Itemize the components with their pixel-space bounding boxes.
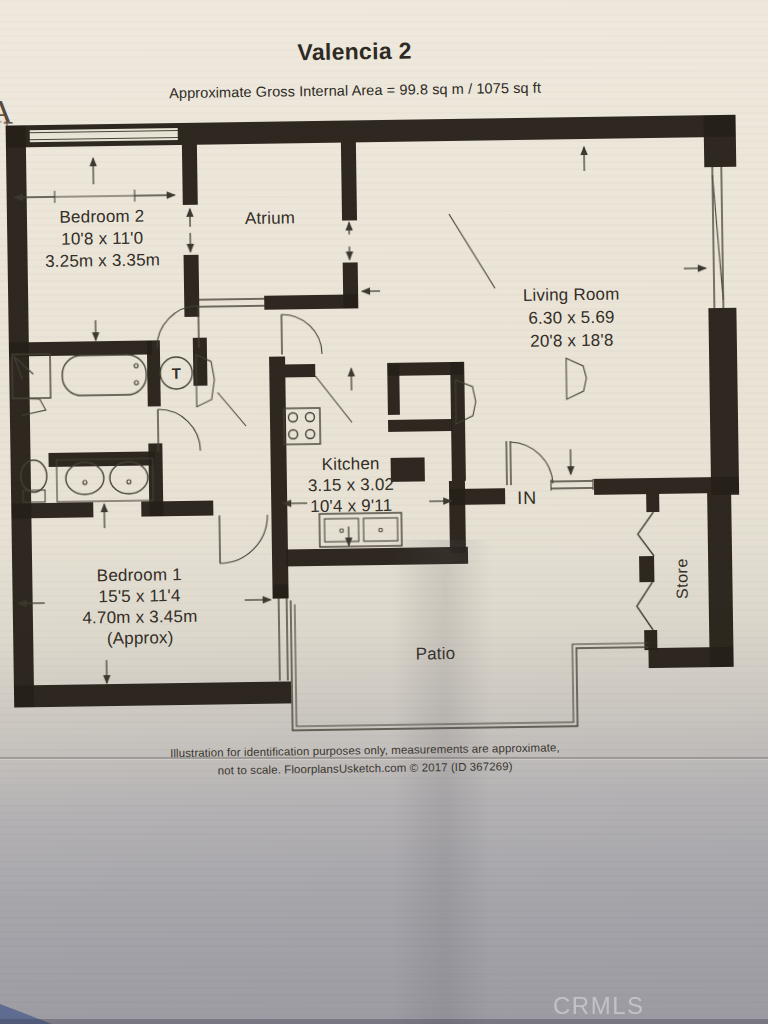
room-label-bedroom1: Bedroom 1 15'5 x 11'4 4.70m x 3.45m (App…: [82, 564, 198, 650]
atrium-name: Atrium: [245, 207, 296, 230]
paper-crease-horizontal: [0, 757, 768, 759]
bedroom1-patio-door: [279, 598, 288, 680]
bathtub-icon: [62, 355, 147, 396]
living-room-dims-metric: 6.30 x 5.69: [523, 305, 620, 329]
room-label-store: Store: [673, 558, 692, 599]
bedroom1-dims-imperial: 15'5 x 11'4: [82, 585, 197, 608]
stove-icon: [284, 408, 321, 445]
tank-label: T: [172, 365, 181, 382]
room-label-living-room: Living Room 6.30 x 5.69 20'8 x 18'8: [523, 282, 621, 352]
door-arcs: [156, 304, 325, 564]
atrium-opening: [199, 299, 264, 307]
bedroom1-dims-metric: 4.70m x 3.45m: [82, 606, 197, 629]
kitchen-name: Kitchen: [307, 453, 394, 475]
paper-content: Valencia 2 Approximate Gross Internal Ar…: [0, 0, 768, 1024]
living-room-name: Living Room: [523, 282, 620, 306]
room-label-patio: Patio: [415, 643, 455, 666]
entry-door: [506, 440, 593, 491]
bedroom2-dims-metric: 3.25m x 3.35m: [45, 249, 160, 273]
bedroom1-approx-note: (Approx): [83, 627, 198, 650]
patio-outline: [291, 595, 650, 730]
floorplan-photo: Valencia 2 Approximate Gross Internal Ar…: [0, 0, 768, 1024]
room-label-kitchen: Kitchen 3.15 x 3.02 10'4 x 9'11: [307, 453, 394, 517]
patio-name: Patio: [415, 643, 455, 666]
bedroom2-name: Bedroom 2: [44, 205, 159, 229]
room-label-atrium: Atrium: [245, 207, 296, 230]
bedroom2-window: [30, 128, 178, 142]
kitchen-dims-metric: 3.15 x 3.02: [308, 474, 395, 496]
room-label-bedroom2: Bedroom 2 10'8 x 11'0 3.25m x 3.35m: [44, 205, 160, 273]
photo-bottom-edge: [0, 1019, 768, 1024]
entrance-label: IN: [517, 488, 537, 509]
bedroom1-name: Bedroom 1: [82, 564, 197, 587]
crmls-watermark: CRMLS: [553, 992, 645, 1020]
bedroom2-dims-imperial: 10'8 x 11'0: [45, 227, 160, 251]
kitchen-dims-imperial: 10'4 x 9'11: [308, 495, 395, 517]
kitchen-sink-icon: [319, 513, 401, 547]
living-room-dims-imperial: 20'8 x 18'8: [523, 328, 620, 352]
living-room-window: [712, 167, 723, 308]
